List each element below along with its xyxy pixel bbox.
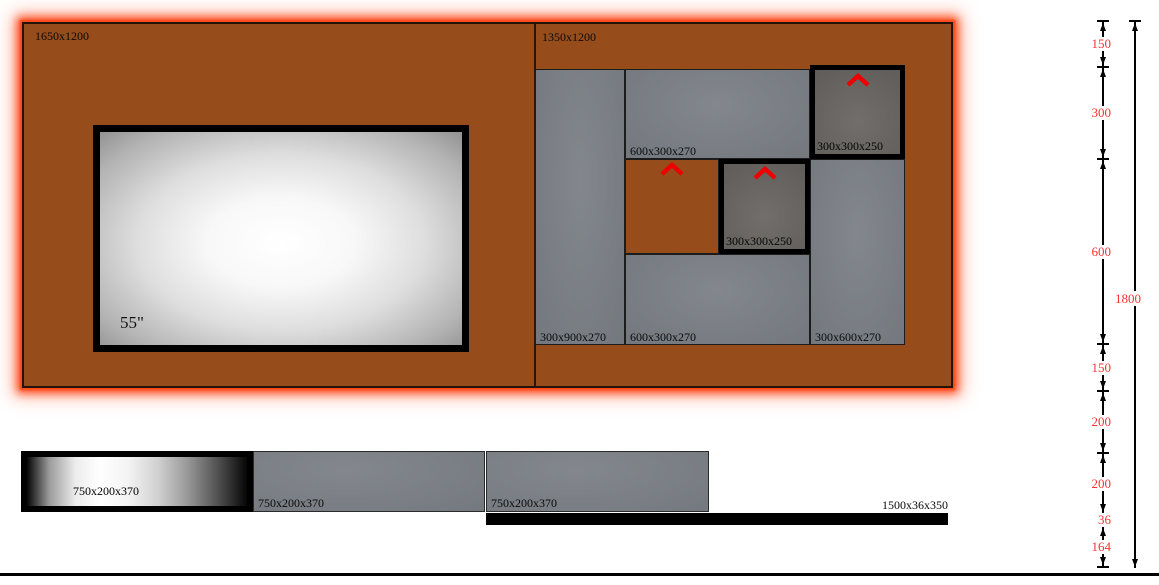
panel-col-left-label: 300x900x270	[540, 330, 606, 344]
dimension-value: 200	[1091, 477, 1113, 491]
open-niche	[625, 159, 719, 254]
dimension-value: 300	[1091, 106, 1113, 120]
dimension-segment: 150	[1097, 343, 1109, 390]
dimension-segment: 200	[1097, 452, 1109, 513]
left-section-size-label: 1650x1200	[35, 29, 89, 43]
chevron-up-icon	[659, 162, 685, 176]
base-shelf-2-label: 750x200x370	[258, 496, 324, 510]
speaker-box-top: 300x300x250	[810, 65, 905, 159]
speaker-box-middle: 300x300x250	[719, 159, 810, 254]
panel-col-left: 300x900x270	[535, 69, 625, 345]
right-section-size-label: 1350x1200	[542, 30, 596, 44]
dimension-value: 200	[1091, 415, 1113, 429]
tv-55-inch: 55"	[93, 125, 469, 352]
dimension-value: 150	[1091, 361, 1113, 375]
dimension-value: 164	[1091, 540, 1113, 554]
panel-col-right-label: 300x600x270	[815, 330, 881, 344]
panel-col-right: 300x600x270	[810, 159, 905, 345]
dimension-value: 600	[1091, 245, 1113, 259]
dimension-total-value: 1800	[1114, 291, 1142, 306]
tv-size-label: 55"	[120, 313, 144, 333]
base-shelf-1-label: 750x200x370	[73, 484, 139, 499]
base-shelf-3: 750x200x370	[486, 451, 709, 512]
panel-shelf-top: 600x300x270	[625, 69, 810, 159]
wall-composite: 1650x1200 1350x1200 55" 300x900x270 600x…	[22, 22, 953, 388]
dimension-segment: 600	[1097, 158, 1109, 343]
chevron-up-icon	[845, 73, 871, 87]
panel-shelf-bottom: 600x300x270	[625, 254, 810, 345]
panel-shelf-bottom-label: 600x300x270	[630, 330, 696, 344]
ground-line	[0, 573, 1159, 576]
base-shelf-metal-face: 750x200x370	[27, 457, 247, 506]
dimension-value: 36	[1097, 513, 1112, 527]
base-rail	[486, 513, 948, 525]
panel-shelf-top-label: 600x300x270	[630, 144, 696, 158]
base-shelf-3-label: 750x200x370	[491, 496, 557, 510]
speaker-top-size-label: 300x300x250	[817, 140, 883, 153]
chevron-up-icon	[752, 166, 778, 180]
dimension-value: 150	[1091, 37, 1113, 51]
dimension-segment: 300	[1097, 66, 1109, 158]
base-shelf-metal: 750x200x370	[21, 451, 253, 512]
dimension-segment: 164	[1097, 525, 1109, 568]
dimension-segment: 36	[1097, 513, 1109, 525]
wall-unit-drawing: 1650x1200 1350x1200 55" 300x900x270 600x…	[0, 0, 1159, 585]
tv-screen: 55"	[100, 132, 462, 345]
speaker-middle-size-label: 300x300x250	[726, 235, 792, 248]
base-rail-label: 1500x36x350	[860, 498, 948, 513]
base-shelf-2: 750x200x370	[253, 451, 485, 512]
dimension-segment: 150	[1097, 20, 1109, 66]
dimension-segment: 200	[1097, 390, 1109, 452]
